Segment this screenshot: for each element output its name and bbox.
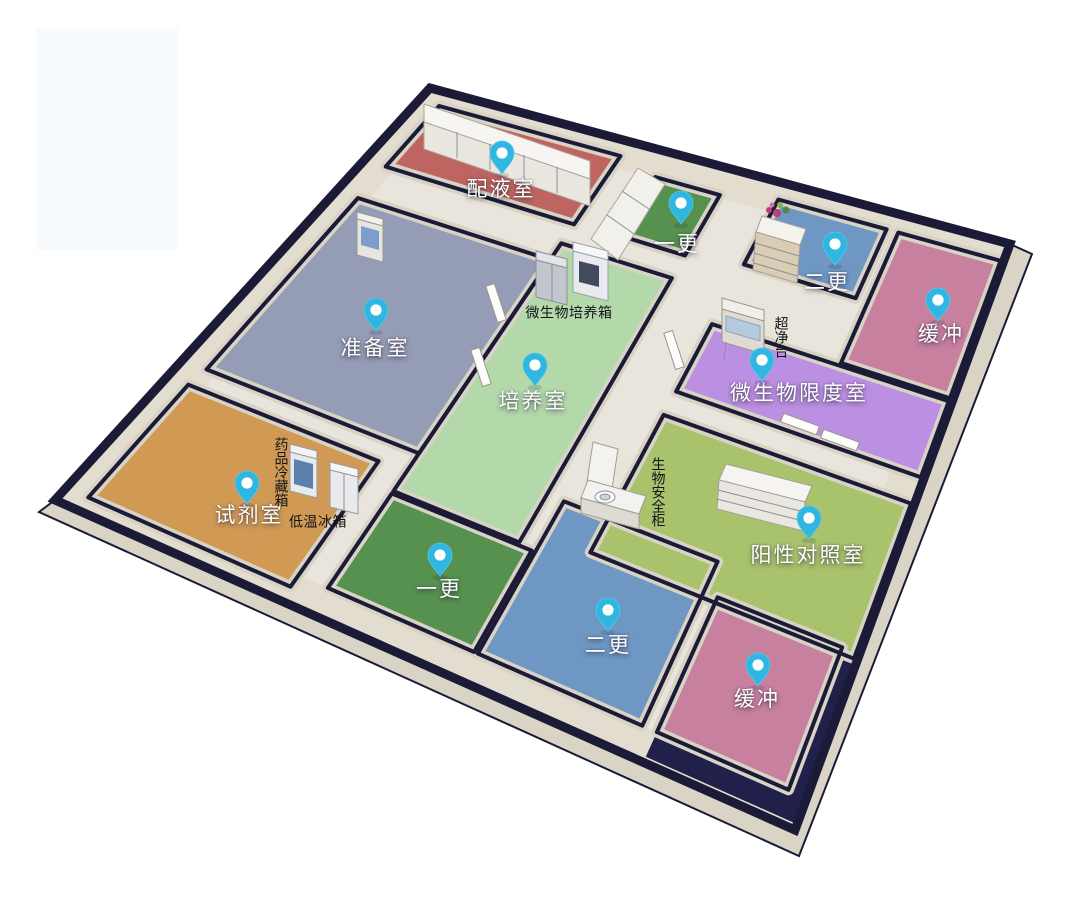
floorplan-3d-render [0,0,1068,918]
location-pin-icon-shiji[interactable] [233,464,261,508]
location-pin-icon-zhunbeishi[interactable] [362,291,390,335]
location-pin-icon-ergeng_bottom[interactable] [594,591,622,635]
location-pin-icon-yigeng_bottom[interactable] [426,536,454,580]
floorplan-scene: 配液室 一更 二更 缓冲 准备室 [0,0,1068,918]
location-pin-icon-huanchong_top[interactable] [924,281,952,325]
location-pin-icon-peiyangshi[interactable] [521,346,549,390]
location-pin-icon-xiandu[interactable] [748,341,776,385]
location-pin-icon-ergeng_top[interactable] [821,225,849,269]
location-pin-icon-huanchong_bottom[interactable] [744,646,772,690]
location-pin-icon-yigeng_top[interactable] [667,184,695,228]
location-pin-icon-yangxing[interactable] [795,499,823,543]
location-pin-icon-peiyeshi[interactable] [488,134,516,178]
